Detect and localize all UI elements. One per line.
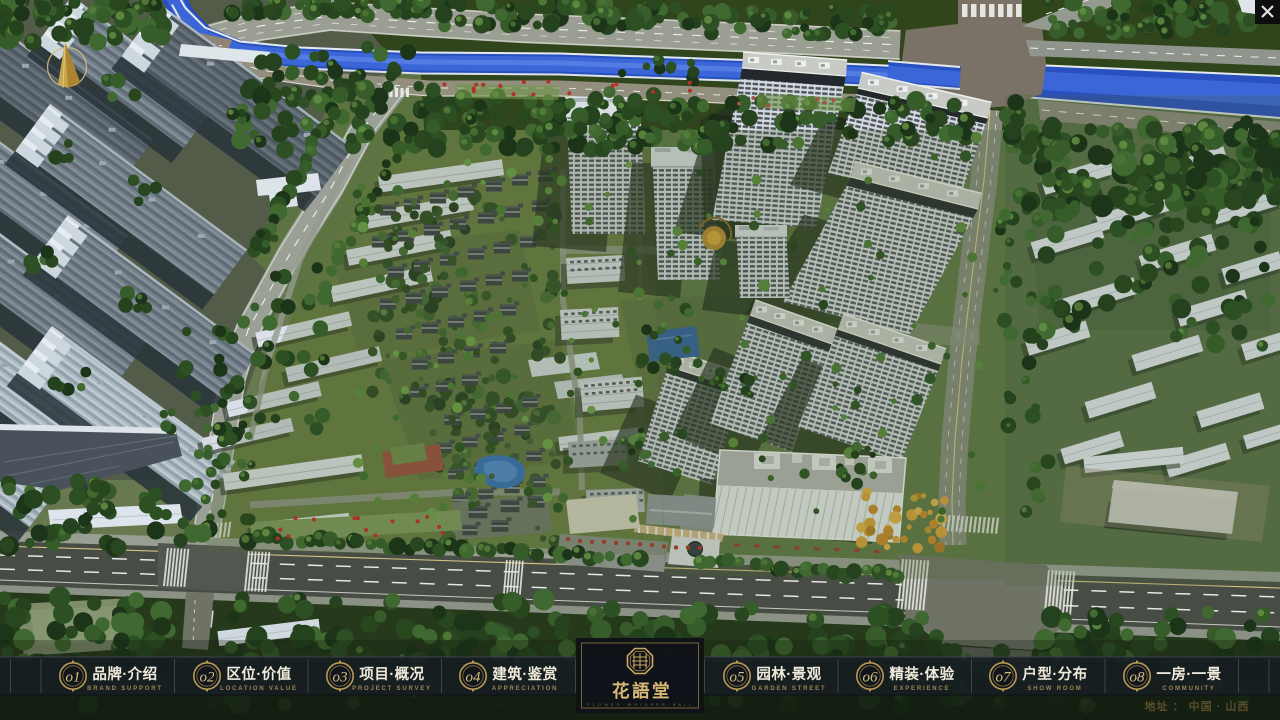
svg-text:o3: o3 xyxy=(333,670,348,686)
svg-text:o1: o1 xyxy=(66,670,81,686)
svg-text:o4: o4 xyxy=(466,670,482,686)
svg-text:BRAND SUPPORT: BRAND SUPPORT xyxy=(87,686,163,692)
svg-text:SHOW ROOM: SHOW ROOM xyxy=(1027,686,1082,692)
svg-text:COMMUNITY: COMMUNITY xyxy=(1162,686,1215,692)
svg-text:EXPERIENCE: EXPERIENCE xyxy=(894,686,951,692)
svg-text:o7: o7 xyxy=(996,670,1013,686)
svg-text:园林·景观: 园林·景观 xyxy=(756,665,821,683)
svg-text:o5: o5 xyxy=(730,670,746,686)
svg-text:一房·一景: 一房·一景 xyxy=(1156,665,1221,683)
svg-text:o6: o6 xyxy=(863,670,879,686)
svg-text:精装·体验: 精装·体验 xyxy=(889,665,954,683)
svg-text:PROJECT SURVEY: PROJECT SURVEY xyxy=(352,686,432,692)
svg-text:F L O W E R · W H I S P E R ·: F L O W E R · W H I S P E R · H A L L xyxy=(587,703,692,707)
svg-text:地址 ： 中国 · 山西: 地址 ： 中国 · 山西 xyxy=(1145,699,1250,713)
svg-text:APPRECIATION: APPRECIATION xyxy=(492,686,559,692)
svg-text:GARDEN STREET: GARDEN STREET xyxy=(752,686,827,692)
svg-text:品牌·介绍: 品牌·介绍 xyxy=(92,665,157,683)
svg-text:o8: o8 xyxy=(1130,670,1146,686)
svg-text:户型·分布: 户型·分布 xyxy=(1022,665,1087,683)
svg-text:项目·概况: 项目·概况 xyxy=(359,665,424,683)
svg-text:花語堂: 花語堂 xyxy=(612,681,672,701)
svg-text:LOCATION VALUE: LOCATION VALUE xyxy=(220,686,298,692)
svg-text:区位·价值: 区位·价值 xyxy=(226,665,291,683)
svg-text:o2: o2 xyxy=(200,670,216,686)
svg-text:建筑·鉴赏: 建筑·鉴赏 xyxy=(492,665,557,683)
